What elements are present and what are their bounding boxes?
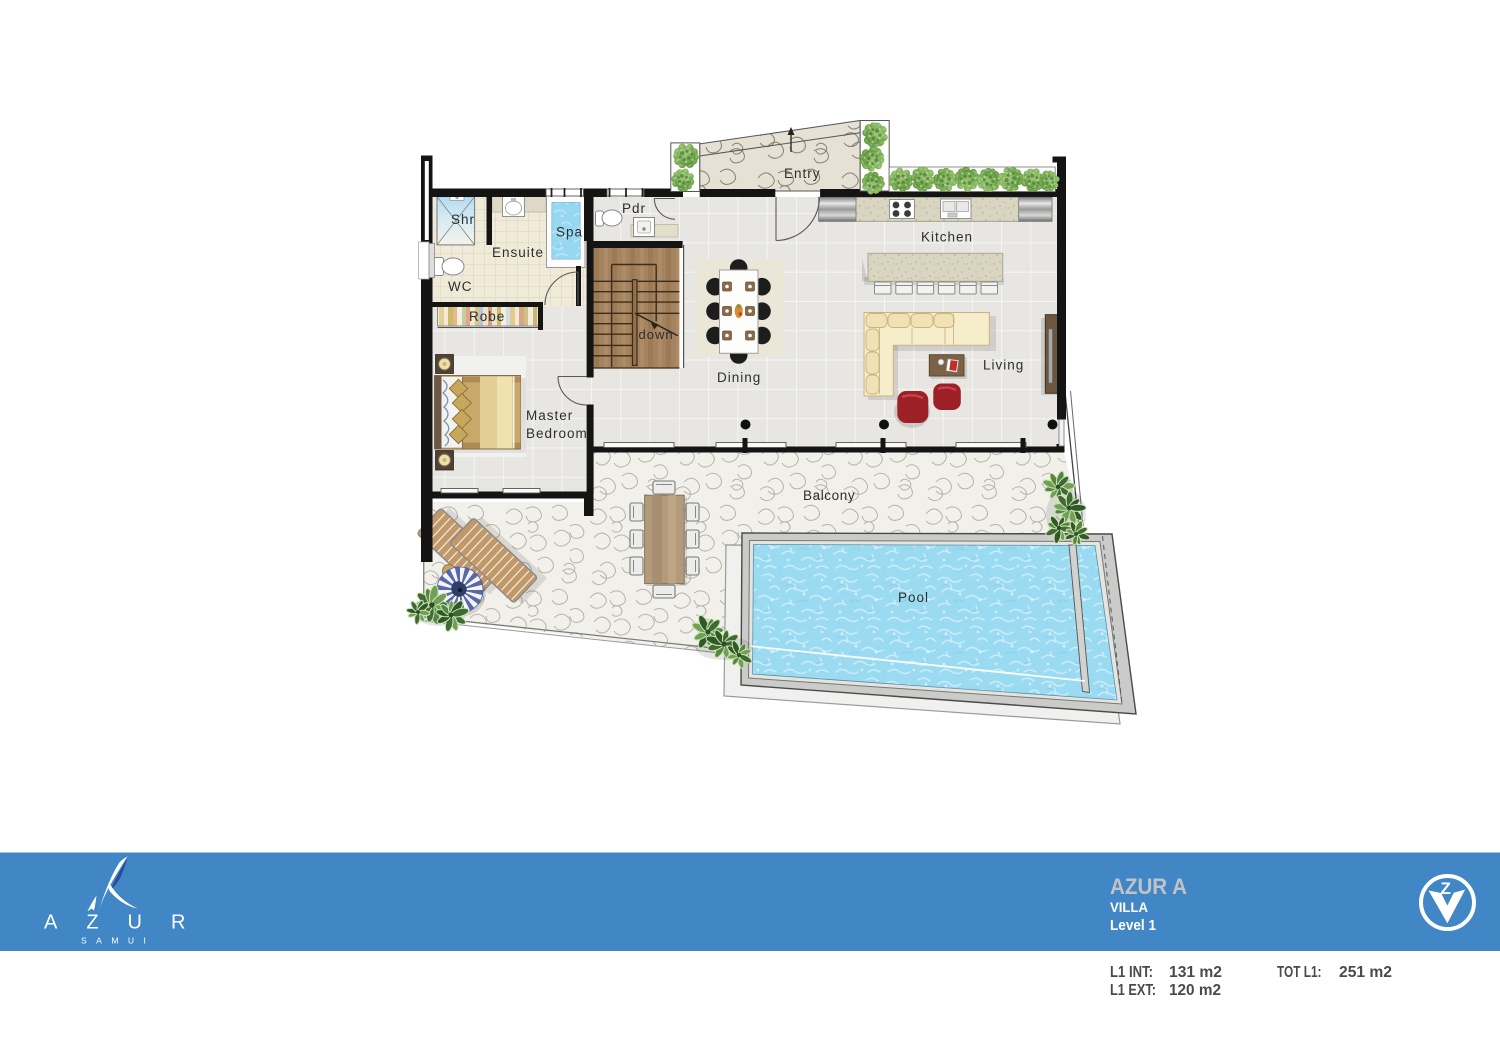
svg-text:Kitchen: Kitchen	[921, 230, 973, 245]
svg-text:120 m2: 120 m2	[1169, 982, 1221, 999]
svg-text:Ensuite: Ensuite	[492, 245, 544, 260]
svg-text:Pdr: Pdr	[622, 201, 646, 216]
svg-text:Spa: Spa	[556, 225, 583, 240]
svg-text:Bedroom: Bedroom	[526, 426, 588, 441]
svg-text:Dining: Dining	[717, 370, 761, 385]
svg-text:Robe: Robe	[469, 309, 505, 324]
svg-text:VILLA: VILLA	[1110, 900, 1148, 915]
svg-text:131 m2: 131 m2	[1169, 964, 1222, 981]
svg-text:Master: Master	[526, 408, 573, 423]
svg-text:Shr: Shr	[451, 212, 475, 227]
svg-text:Living: Living	[983, 358, 1024, 373]
svg-text:WC: WC	[448, 279, 473, 294]
svg-text:SAMUI: SAMUI	[81, 936, 155, 946]
svg-text:down: down	[639, 327, 674, 342]
svg-text:AZUR: AZUR	[44, 912, 214, 934]
svg-text:Level 1: Level 1	[1110, 917, 1156, 934]
svg-text:Entry: Entry	[784, 166, 821, 181]
svg-text:251 m2: 251 m2	[1339, 964, 1392, 981]
svg-text:L1 EXT:: L1 EXT:	[1110, 982, 1156, 999]
svg-text:TOT L1:: TOT L1:	[1277, 964, 1322, 981]
svg-text:Balcony: Balcony	[803, 488, 855, 503]
svg-text:AZUR A: AZUR A	[1110, 874, 1187, 899]
svg-text:Pool: Pool	[898, 590, 929, 605]
svg-text:L1 INT:: L1 INT:	[1110, 964, 1153, 981]
